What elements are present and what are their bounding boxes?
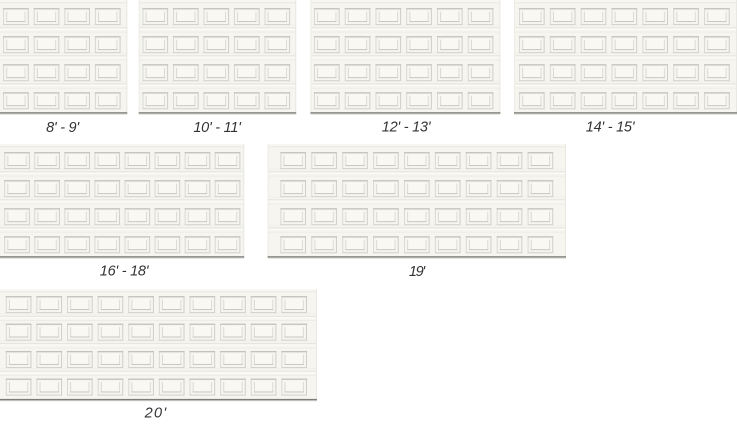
svg-text:10' - 11': 10' - 11' bbox=[193, 120, 242, 136]
svg-text:19': 19' bbox=[409, 264, 427, 280]
svg-text:16' - 18': 16' - 18' bbox=[100, 263, 150, 279]
svg-text:8' - 9': 8' - 9' bbox=[46, 120, 80, 136]
svg-text:12' - 13': 12' - 13' bbox=[382, 120, 432, 136]
svg-text:14' - 15': 14' - 15' bbox=[586, 120, 636, 136]
svg-text:20': 20' bbox=[144, 406, 168, 422]
